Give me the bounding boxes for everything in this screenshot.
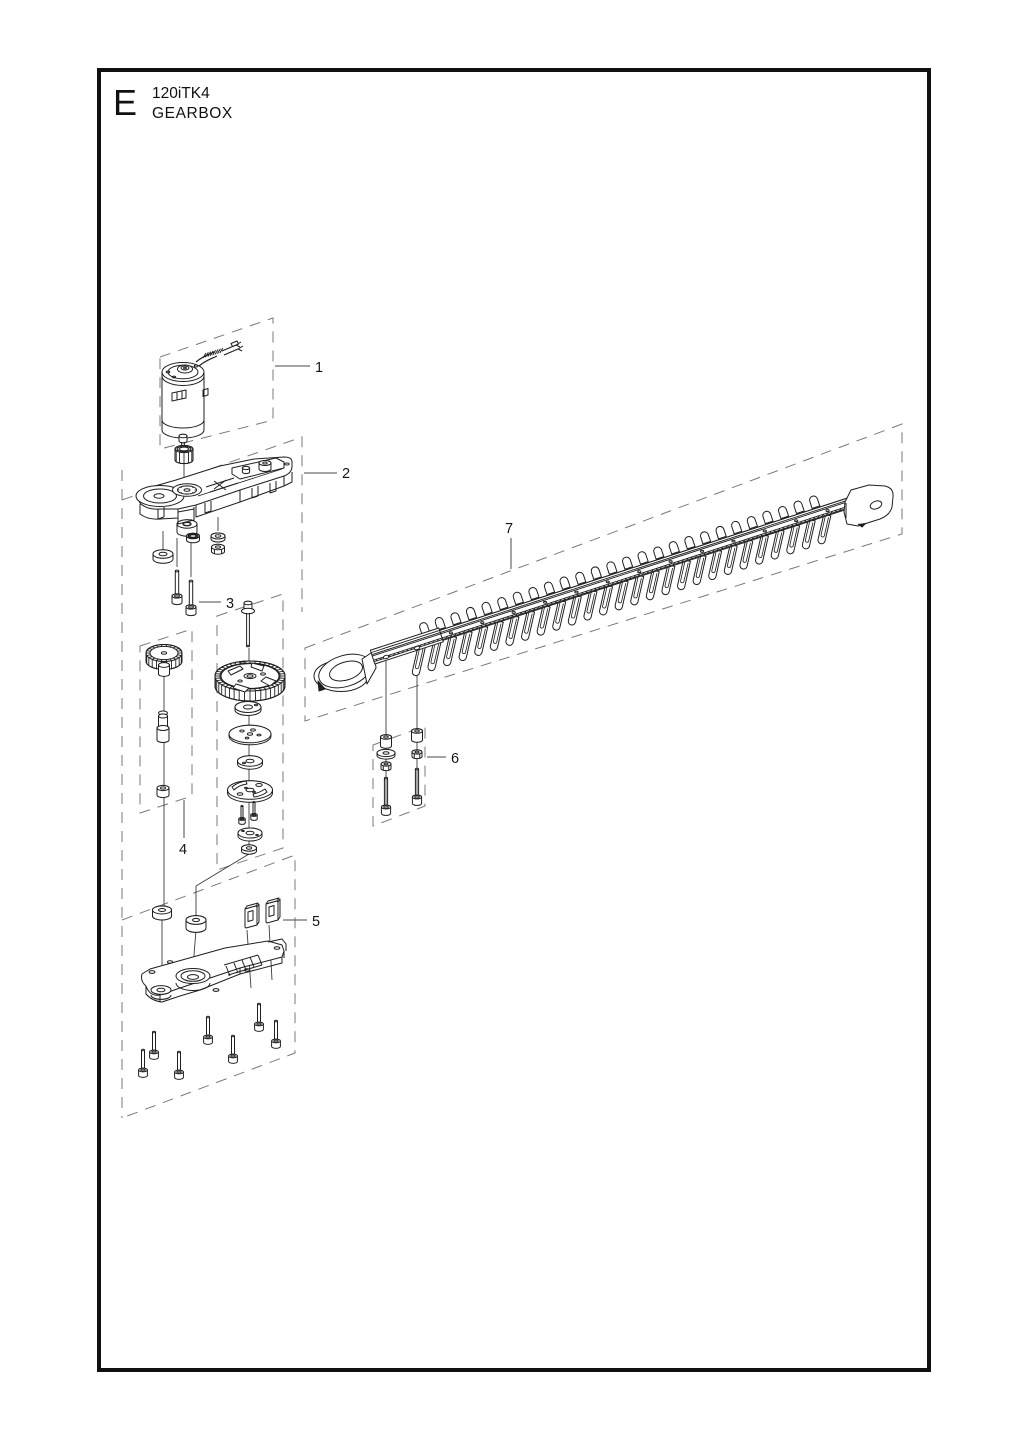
line-art xyxy=(178,509,194,512)
line-art xyxy=(371,492,866,653)
line-art xyxy=(435,618,445,630)
drive-gear-stack xyxy=(215,601,285,854)
callout-1-number: 1 xyxy=(315,360,323,376)
line-art xyxy=(810,496,820,508)
line-art xyxy=(159,663,170,668)
line-art xyxy=(270,491,276,493)
line-art xyxy=(190,535,196,538)
line-art xyxy=(189,580,192,582)
line-art xyxy=(190,450,192,451)
line-art xyxy=(763,511,773,523)
line-art xyxy=(246,645,249,647)
cutter-blade-assembly xyxy=(314,485,893,694)
line-art xyxy=(544,582,554,594)
line-art xyxy=(374,500,869,661)
line-art xyxy=(159,714,168,718)
retaining-clips xyxy=(245,898,280,928)
line-art xyxy=(701,532,711,544)
line-art xyxy=(669,542,679,554)
line-art xyxy=(242,466,249,469)
line-art xyxy=(794,501,804,513)
callout-6: 6 xyxy=(427,751,459,767)
line-art xyxy=(161,787,166,789)
callout-6-number: 6 xyxy=(451,751,459,767)
parts-diagram-page: E 120iTK4 GEARBOX 1 2 3 xyxy=(0,0,1024,1435)
line-art xyxy=(844,485,893,526)
line-art xyxy=(176,450,178,451)
callout-7: 7 xyxy=(505,521,513,569)
dashed-box xyxy=(305,424,902,721)
line-art xyxy=(415,751,419,753)
line-art xyxy=(177,651,181,652)
cover-screws xyxy=(139,1003,281,1079)
line-art xyxy=(451,613,461,625)
line-art xyxy=(591,567,601,579)
line-art xyxy=(168,961,173,963)
callout-3-number: 3 xyxy=(226,596,234,612)
line-art xyxy=(215,546,220,548)
dashed-group-boxes xyxy=(122,318,902,1118)
line-art xyxy=(166,645,167,647)
motor-pinion-gear xyxy=(175,445,193,463)
line-art xyxy=(161,660,162,662)
callout-5-number: 5 xyxy=(312,914,320,930)
line-art xyxy=(685,537,695,549)
callout-1: 1 xyxy=(275,360,323,376)
gearbox-housing-lower-plate xyxy=(142,939,287,1002)
line-art xyxy=(161,645,162,647)
line-art xyxy=(154,494,164,498)
callout-4: 4 xyxy=(179,800,187,858)
line-art xyxy=(176,447,178,448)
lower-plate-washers xyxy=(153,906,207,932)
line-art xyxy=(259,461,271,466)
callout-5: 5 xyxy=(283,914,320,930)
line-art xyxy=(159,909,166,912)
line-art xyxy=(466,607,476,619)
line-art xyxy=(638,552,648,564)
line-art xyxy=(246,847,251,849)
callout-7-number: 7 xyxy=(505,521,513,537)
callout-3: 3 xyxy=(199,596,234,612)
line-art xyxy=(193,918,200,921)
line-art xyxy=(246,831,254,835)
line-art xyxy=(482,602,492,614)
line-art xyxy=(147,655,151,656)
housing-screws xyxy=(172,570,196,615)
line-art xyxy=(576,572,586,584)
assembly-axis-lines xyxy=(162,460,417,988)
line-art xyxy=(529,588,539,600)
line-art xyxy=(213,989,219,992)
gearbox-housing-upper xyxy=(136,457,292,536)
line-art xyxy=(248,911,253,922)
line-art xyxy=(159,552,167,556)
electric-motor xyxy=(162,341,243,447)
line-art xyxy=(372,494,867,655)
line-art xyxy=(384,736,389,738)
line-art xyxy=(747,517,757,529)
exploded-diagram-canvas: 1 2 3 4 5 6 7 xyxy=(0,0,1024,1435)
line-art xyxy=(607,562,617,574)
line-art xyxy=(244,601,252,605)
line-art xyxy=(269,906,274,917)
line-art xyxy=(215,535,221,537)
line-art xyxy=(222,345,238,355)
line-art xyxy=(246,759,254,763)
line-art xyxy=(372,496,867,657)
axis-line xyxy=(196,854,249,886)
callout-2: 2 xyxy=(304,466,350,482)
line-art xyxy=(161,652,166,654)
line-art xyxy=(151,986,171,995)
line-art xyxy=(513,592,523,604)
line-art xyxy=(244,673,256,678)
line-art xyxy=(242,608,255,614)
line-art xyxy=(383,752,389,755)
blade-fastener-set xyxy=(377,729,423,816)
line-art xyxy=(623,557,633,569)
line-art xyxy=(779,507,789,519)
line-art xyxy=(147,651,151,652)
line-art xyxy=(415,730,420,732)
line-art xyxy=(244,705,253,709)
callout-4-number: 4 xyxy=(179,842,187,858)
line-art xyxy=(166,660,167,662)
line-art xyxy=(732,521,742,533)
line-art xyxy=(151,995,171,999)
line-art xyxy=(716,526,726,538)
callout-2-number: 2 xyxy=(342,466,350,482)
line-art xyxy=(180,447,189,451)
line-art xyxy=(247,733,252,735)
line-art xyxy=(498,598,508,610)
line-art xyxy=(177,655,181,656)
line-art xyxy=(384,763,388,765)
line-art xyxy=(654,547,664,559)
line-art xyxy=(175,570,178,572)
line-art xyxy=(190,447,192,448)
line-art xyxy=(179,434,187,438)
line-art xyxy=(560,577,570,589)
housing-washers xyxy=(153,533,225,563)
line-art xyxy=(157,726,169,731)
